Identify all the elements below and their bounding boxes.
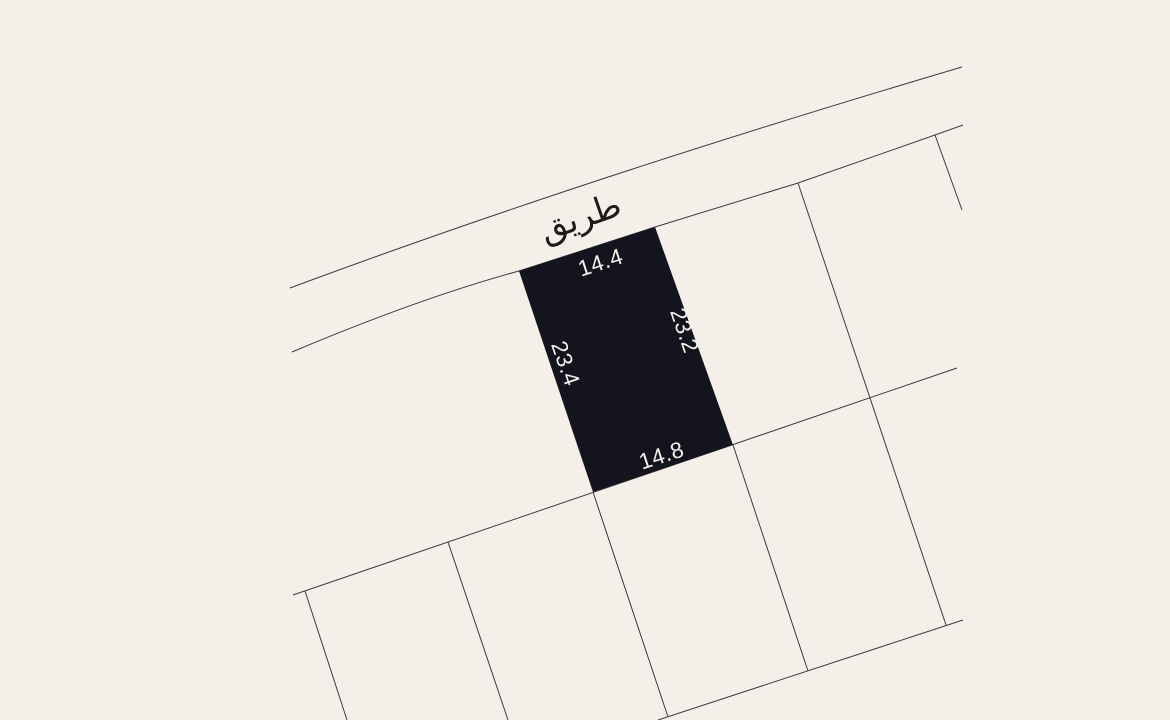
plot-map-canvas[interactable]: طريق 14.4 23.2 23.4 14.8: [0, 0, 1170, 720]
cadastral-plan-svg: طريق 14.4 23.2 23.4 14.8: [0, 0, 1170, 720]
